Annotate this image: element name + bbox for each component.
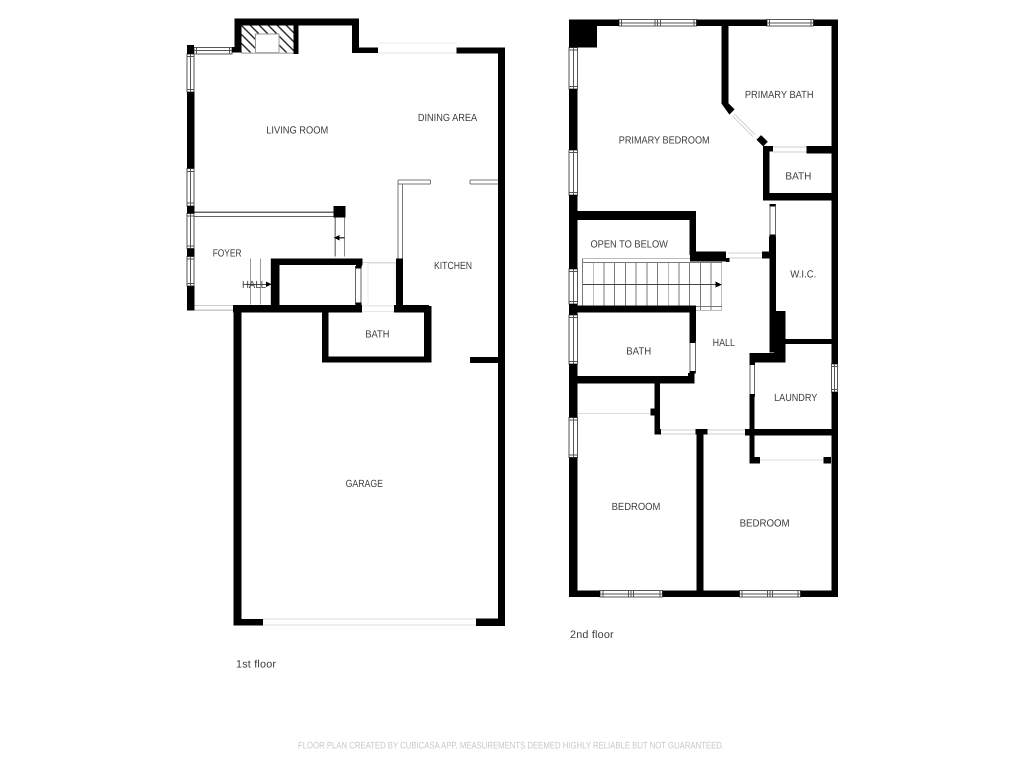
- svg-text:1st floor: 1st floor: [236, 659, 276, 671]
- svg-text:LAUNDRY: LAUNDRY: [774, 393, 817, 404]
- svg-text:BEDROOM: BEDROOM: [612, 502, 661, 513]
- svg-text:HALL: HALL: [242, 280, 266, 291]
- svg-text:BEDROOM: BEDROOM: [740, 519, 790, 530]
- svg-text:HALL: HALL: [713, 338, 735, 349]
- svg-text:DINING AREA: DINING AREA: [418, 113, 477, 124]
- svg-text:FOYER: FOYER: [213, 249, 242, 260]
- svg-text:LIVING ROOM: LIVING ROOM: [266, 126, 328, 137]
- svg-text:KITCHEN: KITCHEN: [434, 261, 472, 272]
- svg-text:2nd floor: 2nd floor: [570, 629, 614, 641]
- svg-text:FLOOR PLAN CREATED BY CUBICASA: FLOOR PLAN CREATED BY CUBICASA APP. MEAS…: [298, 740, 724, 751]
- svg-text:BATH: BATH: [785, 172, 811, 183]
- svg-text:PRIMARY BATH: PRIMARY BATH: [745, 90, 814, 101]
- svg-text:OPEN TO BELOW: OPEN TO BELOW: [590, 240, 668, 251]
- svg-text:GARAGE: GARAGE: [346, 479, 383, 490]
- svg-text:BATH: BATH: [365, 330, 389, 341]
- svg-text:W.I.C.: W.I.C.: [790, 270, 816, 281]
- svg-text:BATH: BATH: [626, 346, 651, 357]
- svg-text:PRIMARY BEDROOM: PRIMARY BEDROOM: [619, 135, 710, 146]
